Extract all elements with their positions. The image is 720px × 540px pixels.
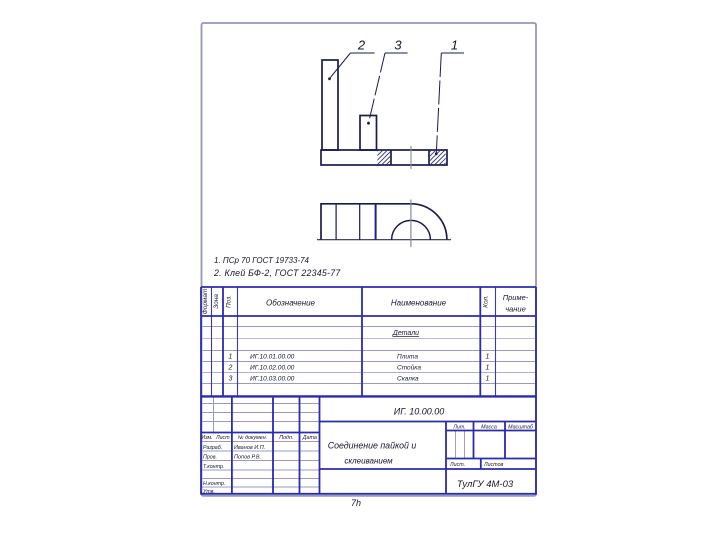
svg-text:2. Клей БФ-2, ГОСТ 22345-77: 2. Клей БФ-2, ГОСТ 22345-77 (213, 268, 341, 278)
svg-text:Листов: Листов (483, 462, 504, 468)
svg-text:ИГ.10.01.00.00: ИГ.10.01.00.00 (250, 354, 295, 361)
svg-text:Приме-: Приме- (503, 293, 529, 302)
svg-text:Попов Р.В.: Попов Р.В. (234, 455, 261, 461)
svg-text:Стойка: Стойка (397, 364, 421, 372)
svg-text:Масса: Масса (481, 425, 497, 431)
svg-text:Дата: Дата (302, 435, 317, 441)
svg-text:ИГ.10.02.00.00: ИГ.10.02.00.00 (250, 365, 295, 372)
svg-text:Масштаб: Масштаб (508, 425, 534, 431)
svg-text:Лист: Лист (215, 435, 230, 441)
svg-text:Разраб.: Разраб. (203, 445, 222, 451)
svg-text:1: 1 (486, 354, 490, 361)
svg-text:Лист.: Лист. (449, 462, 465, 468)
svg-text:1. ПСр 70 ГОСТ 19733-74: 1. ПСр 70 ГОСТ 19733-74 (214, 256, 310, 265)
svg-text:ИГ. 10.00.00: ИГ. 10.00.00 (394, 407, 444, 417)
svg-text:Кол.: Кол. (483, 295, 490, 308)
svg-text:1: 1 (486, 365, 490, 372)
svg-text:Детали: Детали (392, 330, 419, 337)
svg-text:Пров.: Пров. (203, 455, 217, 461)
svg-text:Плита: Плита (397, 354, 418, 361)
svg-text:Соединение пайкой и: Соединение пайкой и (328, 441, 417, 451)
svg-text:Скалка: Скалка (397, 375, 419, 382)
svg-text:ИГ.10.03.00.00: ИГ.10.03.00.00 (250, 375, 295, 382)
svg-text:№ докумен.: № докумен. (238, 435, 267, 441)
svg-text:Зона: Зона (213, 294, 220, 309)
svg-text:1: 1 (229, 354, 233, 361)
svg-text:7h: 7h (351, 498, 361, 508)
svg-text:Иванов И.П.: Иванов И.П. (234, 445, 265, 451)
svg-text:Т.контр.: Т.контр. (203, 464, 224, 470)
svg-text:склеиванием: склеиванием (344, 457, 393, 466)
svg-text:Изм.: Изм. (201, 435, 212, 441)
svg-text:Наименование: Наименование (391, 299, 447, 308)
svg-text:1: 1 (486, 375, 490, 382)
svg-text:3: 3 (229, 375, 233, 382)
svg-text:Поз.: Поз. (226, 295, 233, 308)
svg-text:ТулГУ 4М-03: ТулГУ 4М-03 (457, 479, 514, 490)
svg-text:Обозначение: Обозначение (266, 299, 316, 308)
svg-text:3: 3 (394, 38, 402, 53)
svg-text:чание: чание (505, 305, 526, 314)
svg-text:Утв.: Утв. (203, 489, 215, 495)
svg-text:Формат: Формат (202, 288, 209, 314)
svg-text:2: 2 (357, 38, 366, 53)
svg-text:2: 2 (228, 365, 233, 372)
svg-text:Лит.: Лит. (452, 425, 465, 431)
svg-text:Н.контр.: Н.контр. (203, 481, 225, 487)
svg-text:Подп.: Подп. (279, 435, 293, 441)
svg-text:1: 1 (451, 38, 458, 53)
